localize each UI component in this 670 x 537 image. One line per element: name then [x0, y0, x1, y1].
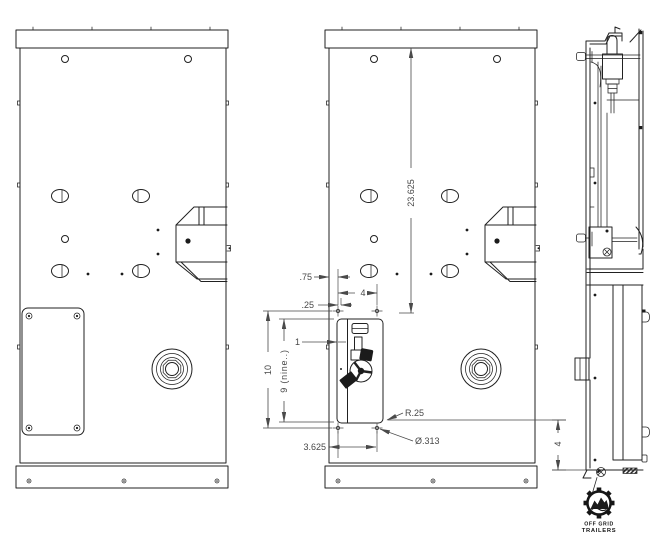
panel-outline	[16, 27, 231, 488]
dim-top-offset: .75	[299, 272, 350, 282]
bolt-head	[577, 53, 586, 61]
dim-valve-inset: 1	[295, 337, 337, 347]
dim-hole-spacing-width: 4	[338, 288, 377, 298]
dim-text-corner-radius: R.25	[405, 408, 424, 418]
water-spigot	[339, 324, 373, 389]
dim-text-side-bottom-height: 4	[553, 441, 563, 446]
dim-cutout-height: 9 (nine..)	[279, 319, 289, 422]
logo-text-line2: TRAILERS	[582, 528, 617, 534]
dim-hole-diameter: Ø.313	[380, 429, 440, 446]
curved-tube	[591, 62, 601, 87]
dim-text-hole-span-height: 10	[263, 365, 273, 375]
dim-overall-height: 23.625	[406, 48, 416, 313]
inner-channel-lines	[598, 62, 607, 227]
side-profile-view: 4	[552, 27, 650, 508]
dim-text-edge-gap: .25	[301, 300, 314, 310]
technical-drawing: 23.625 .75 4 .25 1 10	[0, 0, 670, 537]
dim-text-overall-height: 23.625	[406, 179, 416, 207]
logo-text-line1: OFF GRID	[584, 522, 614, 528]
threaded-block	[623, 468, 637, 474]
dim-side-bottom-height: 4	[552, 420, 566, 470]
drawing-canvas: 23.625 .75 4 .25 1 10	[0, 0, 670, 537]
spigot-cutout-assembly	[337, 319, 383, 423]
dim-corner-radius: R.25	[387, 408, 424, 420]
dim-hole-span-height: 10	[263, 311, 273, 428]
right-pin	[642, 455, 647, 462]
drop-pipe	[607, 89, 639, 114]
panel-outline	[325, 27, 540, 488]
through-stud	[586, 52, 641, 63]
dim-text-valve-inset: 1	[295, 337, 300, 347]
bolt-head	[577, 234, 586, 242]
dim-bottom-inset: 3.625	[303, 442, 376, 452]
gear-mountains-icon	[584, 488, 615, 519]
front-view-dimensioned: 23.625 .75 4 .25 1 10	[263, 27, 588, 488]
brand-logo: OFF GRID TRAILERS	[582, 488, 617, 535]
left-junction-box	[575, 358, 589, 380]
dim-text-bottom-inset: 3.625	[303, 442, 326, 452]
dim-text-top-offset: .75	[299, 272, 312, 282]
dim-text-hole-diameter: Ø.313	[415, 436, 440, 446]
access-cover-plate	[22, 308, 84, 435]
right-tab	[642, 427, 650, 437]
right-tab	[642, 312, 650, 322]
dim-text-hole-spacing: 4	[360, 288, 365, 298]
wall-notch	[590, 168, 594, 207]
front-view-with-cover	[16, 27, 231, 488]
side-right-plate	[630, 29, 643, 249]
valve-body	[603, 54, 623, 79]
dim-text-cutout-height: 9 (nine..)	[279, 349, 289, 393]
stud-rod	[612, 238, 637, 242]
dim-edge-gap: .25	[301, 300, 352, 310]
mid-shelf	[587, 249, 643, 285]
